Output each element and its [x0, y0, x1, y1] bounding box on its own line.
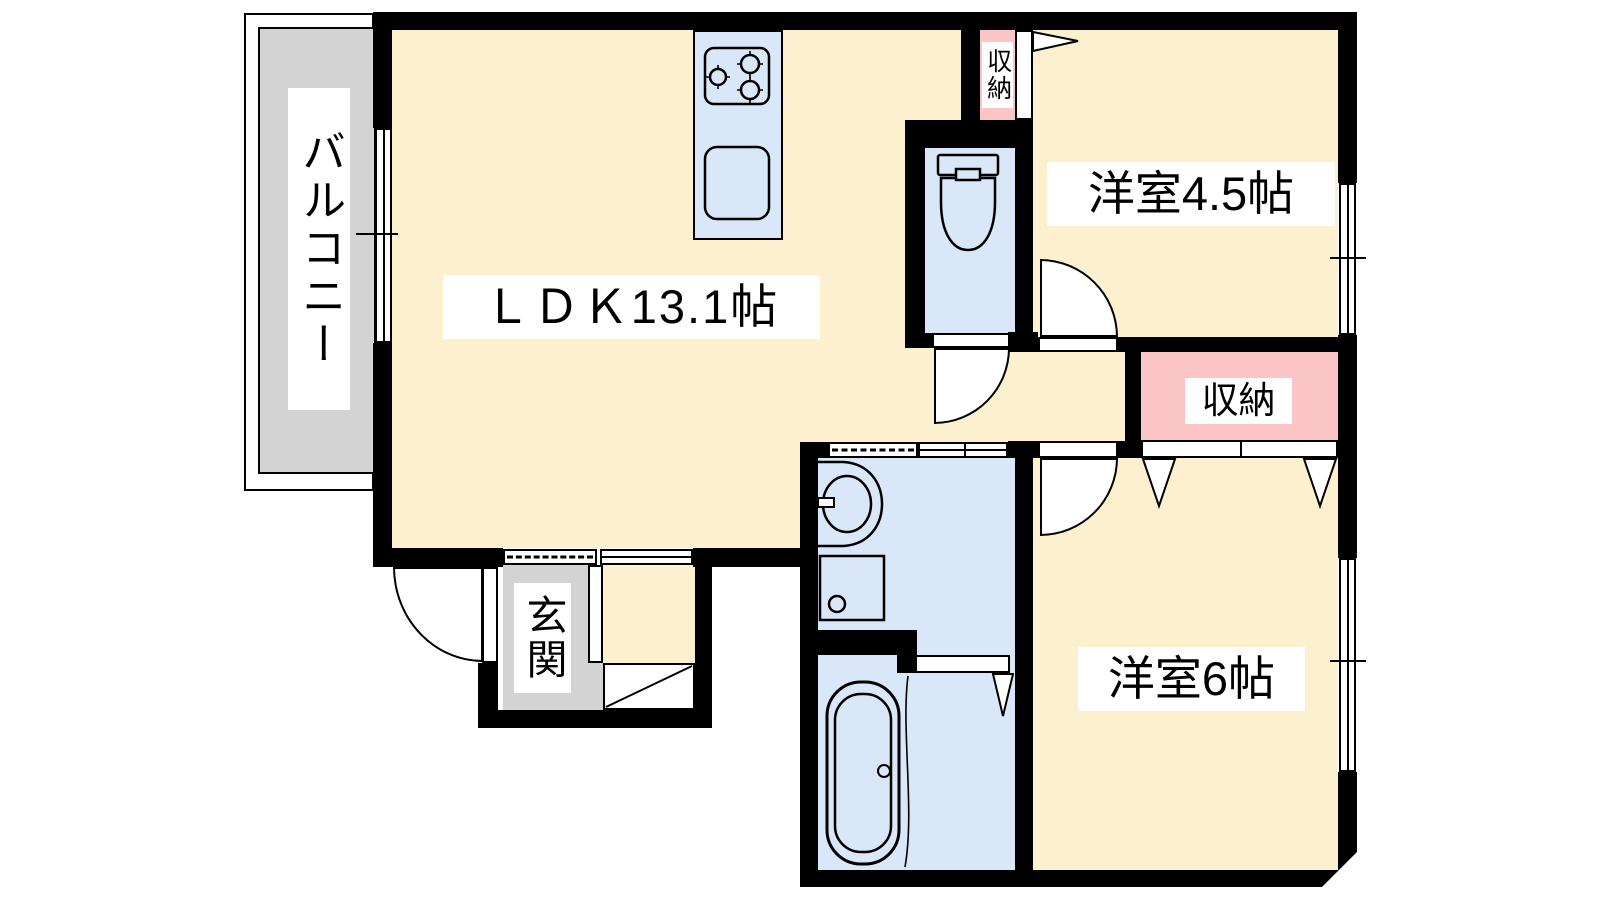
toilet-room — [925, 148, 1015, 348]
floor-divider — [600, 549, 693, 565]
wall — [905, 120, 1033, 148]
toilet-door-frame — [932, 333, 1010, 348]
storage-mid-label: 収納 — [1185, 378, 1292, 424]
wall — [800, 870, 1357, 887]
wall — [1338, 335, 1357, 558]
bathroom — [818, 650, 1015, 870]
wall — [373, 343, 392, 567]
bathroom-door-frame — [915, 655, 1010, 673]
storage-top-label: 収納 — [982, 42, 1013, 108]
storage-top-door — [1015, 30, 1033, 120]
door-swing-icon — [393, 567, 483, 662]
wall — [1008, 441, 1038, 458]
floor-plan: バルコニー ＬＤＫ13.1帖 洋室4.5帖 洋室6帖 収納 収納 玄関 — [0, 0, 1600, 900]
room6-label: 洋室6帖 — [1078, 647, 1305, 711]
wall — [1338, 12, 1357, 183]
window-icon — [1339, 558, 1356, 772]
wall — [373, 548, 503, 567]
ldk-label: ＬＤＫ13.1帖 — [443, 275, 820, 339]
window-icon — [375, 128, 392, 343]
entrance-hall — [603, 565, 695, 663]
washroom-step-dashed — [828, 442, 918, 458]
window-icon — [1339, 183, 1356, 335]
wall — [373, 12, 392, 128]
balcony-label: バルコニー — [288, 88, 350, 410]
shoe-cabinet-icon — [603, 663, 695, 710]
entrance-door-frame — [588, 565, 603, 663]
wall — [373, 12, 1357, 30]
wall — [478, 710, 712, 728]
room45-door-frame — [1038, 337, 1118, 352]
wall — [800, 442, 818, 887]
wall — [818, 630, 897, 655]
room45-label: 洋室4.5帖 — [1047, 162, 1335, 226]
room6-door-frame — [1038, 441, 1118, 458]
wall — [905, 120, 925, 348]
wall — [1118, 441, 1141, 458]
wall — [1015, 120, 1033, 350]
kitchen-counter — [693, 30, 783, 240]
entrance-label: 玄関 — [514, 583, 571, 693]
wall — [1015, 458, 1033, 870]
entrance-door-leaf — [482, 567, 498, 663]
wall — [961, 30, 980, 120]
wall — [1338, 772, 1357, 887]
wall — [897, 630, 917, 673]
washroom-sliding-door-icon — [918, 442, 1008, 458]
wall — [1118, 337, 1338, 352]
entrance-step-dashed — [503, 549, 597, 565]
wall — [478, 663, 498, 710]
washroom — [818, 458, 1015, 650]
storage-mid-folding-doors — [1141, 440, 1338, 458]
wall — [695, 565, 712, 728]
